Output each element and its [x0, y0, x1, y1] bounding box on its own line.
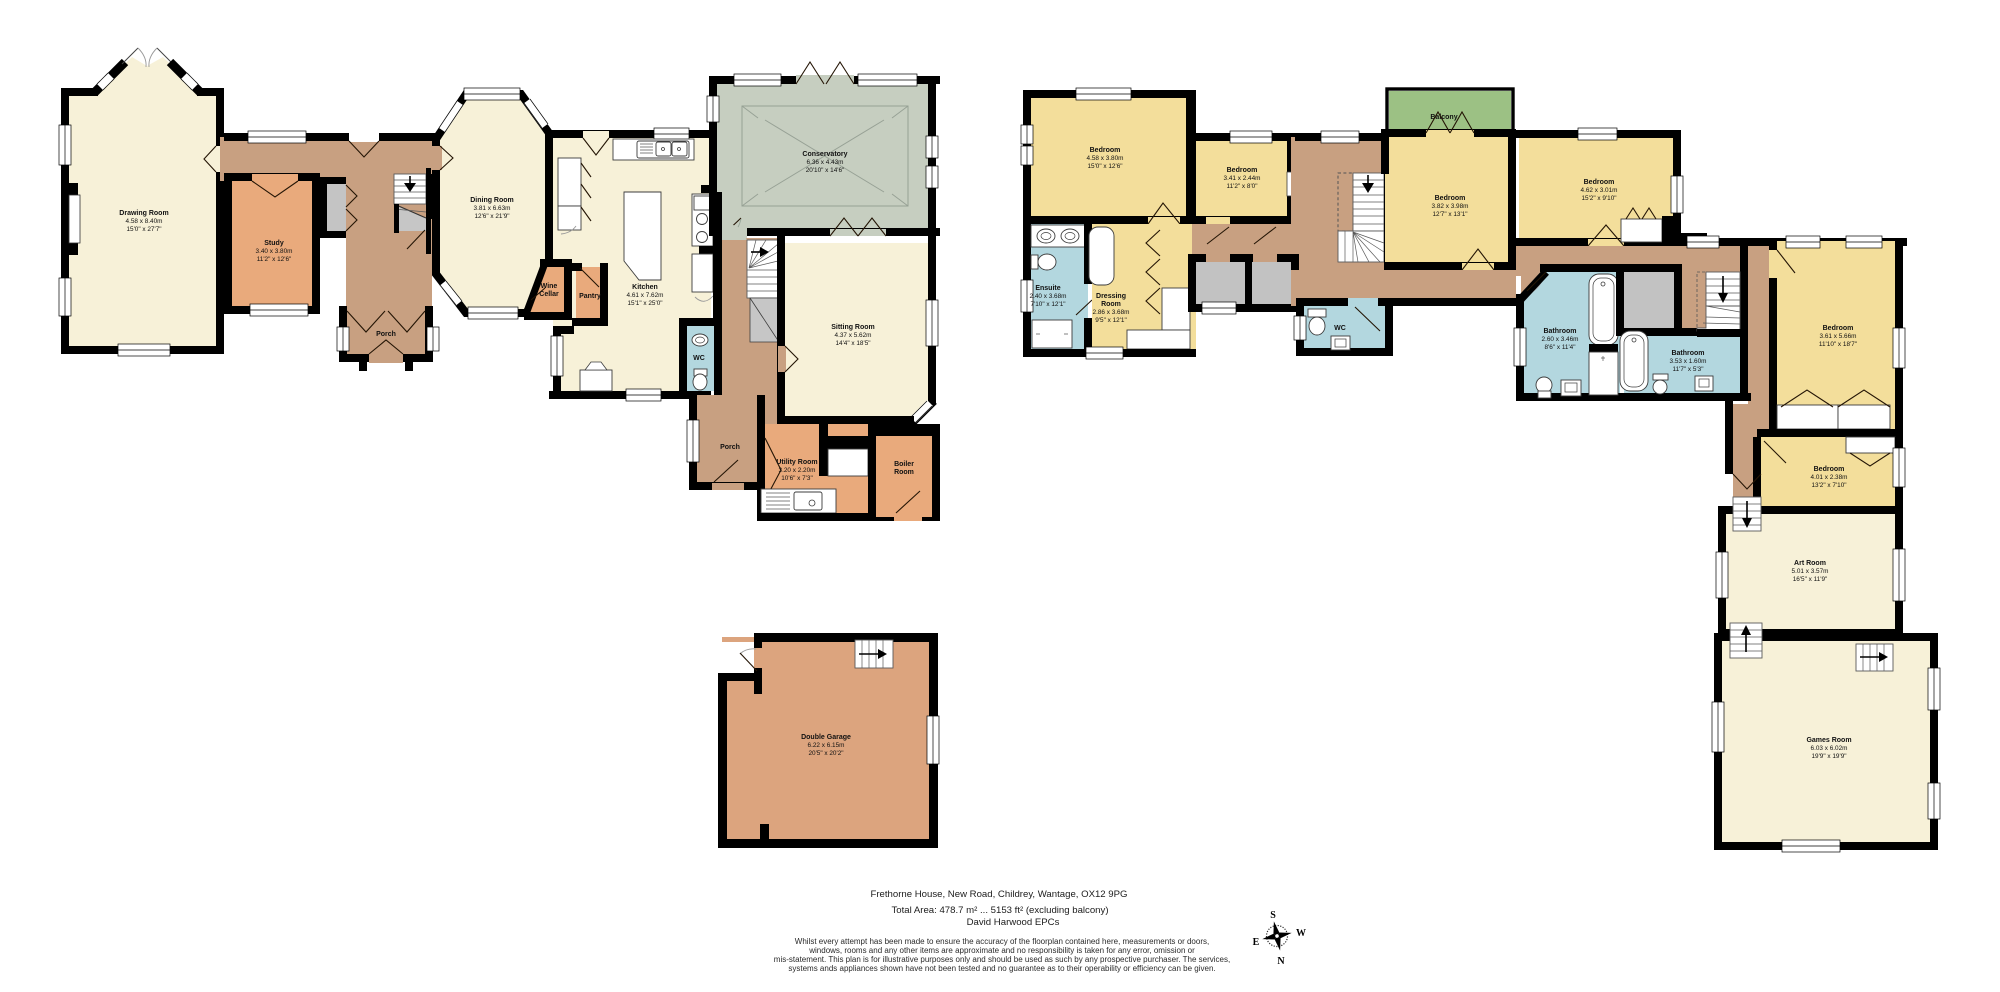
- svg-text:Porch: Porch: [376, 331, 396, 338]
- svg-text:11'7" x 5'3": 11'7" x 5'3": [1672, 366, 1703, 373]
- svg-text:3.41 x 2.44m: 3.41 x 2.44m: [1224, 175, 1261, 182]
- svg-text:Bathroom: Bathroom: [1543, 328, 1576, 335]
- svg-text:WC: WC: [693, 355, 705, 362]
- svg-text:7'10" x 12'1": 7'10" x 12'1": [1030, 301, 1065, 308]
- svg-text:Dining Room: Dining Room: [470, 197, 514, 204]
- svg-text:Sitting Room: Sitting Room: [831, 324, 875, 331]
- svg-text:Pantry: Pantry: [579, 293, 601, 300]
- svg-text:4.58 x 3.80m: 4.58 x 3.80m: [1087, 155, 1124, 162]
- svg-text:Kitchen: Kitchen: [632, 284, 658, 291]
- svg-text:Room: Room: [894, 469, 914, 476]
- svg-text:4.62 x 3.01m: 4.62 x 3.01m: [1581, 187, 1618, 194]
- svg-text:Dressing: Dressing: [1096, 293, 1126, 300]
- svg-text:N: N: [1277, 956, 1285, 967]
- svg-text:2.60 x 3.46m: 2.60 x 3.46m: [1542, 336, 1579, 343]
- svg-text:4.01 x 2.38m: 4.01 x 2.38m: [1811, 474, 1848, 481]
- svg-text:5.01 x 3.57m: 5.01 x 3.57m: [1792, 568, 1829, 575]
- svg-text:13'2" x 7'10": 13'2" x 7'10": [1811, 482, 1846, 489]
- svg-text:Drawing Room: Drawing Room: [119, 210, 168, 217]
- svg-text:2.40 x 3.68m: 2.40 x 3.68m: [1030, 293, 1067, 300]
- svg-text:WC: WC: [1334, 325, 1346, 332]
- svg-text:Bedroom: Bedroom: [1090, 147, 1121, 154]
- svg-text:3.53 x 1.60m: 3.53 x 1.60m: [1670, 358, 1707, 365]
- svg-text:Porch: Porch: [720, 444, 740, 451]
- svg-text:Conservatory: Conservatory: [802, 151, 847, 158]
- svg-text:S: S: [1270, 910, 1276, 921]
- svg-text:15'1" x 25'0": 15'1" x 25'0": [627, 300, 662, 307]
- svg-text:11'2" x 12'6": 11'2" x 12'6": [257, 256, 292, 263]
- svg-text:11'10" x 18'7": 11'10" x 18'7": [1819, 341, 1857, 348]
- svg-text:Wine: Wine: [541, 283, 558, 290]
- svg-text:4.58 x 8.40m: 4.58 x 8.40m: [126, 218, 163, 225]
- svg-text:David Harwood EPCs: David Harwood EPCs: [967, 917, 1060, 928]
- svg-text:4.61 x 7.62m: 4.61 x 7.62m: [627, 292, 664, 299]
- svg-text:windows, rooms and any other i: windows, rooms and any other items are a…: [808, 946, 1195, 955]
- svg-text:Room: Room: [1101, 301, 1121, 308]
- svg-text:15'0" x 12'6": 15'0" x 12'6": [1087, 163, 1122, 170]
- svg-text:4.37 x 5.62m: 4.37 x 5.62m: [835, 332, 872, 339]
- svg-text:3.82 x 3.98m: 3.82 x 3.98m: [1432, 203, 1469, 210]
- svg-text:Double Garage: Double Garage: [801, 734, 851, 741]
- svg-text:Bedroom: Bedroom: [1227, 167, 1258, 174]
- svg-text:16'5" x 11'9": 16'5" x 11'9": [1793, 576, 1828, 583]
- svg-text:9'5" x 12'1": 9'5" x 12'1": [1095, 317, 1127, 324]
- svg-text:Art Room: Art Room: [1794, 560, 1826, 567]
- svg-text:Utility Room: Utility Room: [776, 459, 817, 466]
- svg-text:E: E: [1253, 937, 1260, 948]
- svg-text:Whilst every attempt has been: Whilst every attempt has been made to en…: [795, 937, 1209, 946]
- svg-text:3.40 x 3.80m: 3.40 x 3.80m: [256, 248, 293, 255]
- svg-text:Study: Study: [264, 240, 284, 247]
- svg-text:10'6" x 7'3": 10'6" x 7'3": [781, 475, 813, 482]
- svg-text:W: W: [1296, 928, 1306, 939]
- svg-text:14'4" x 18'5": 14'4" x 18'5": [835, 340, 870, 347]
- svg-text:Total Area: 478.7 m² ... 5153: Total Area: 478.7 m² ... 5153 ft² (exclu…: [891, 905, 1108, 916]
- svg-text:systems ands appliances shown: systems ands appliances shown have not b…: [788, 964, 1215, 973]
- svg-text:15'0" x 27'7": 15'0" x 27'7": [126, 226, 161, 233]
- svg-text:Bathroom: Bathroom: [1671, 350, 1704, 357]
- svg-text:12'7" x 13'1": 12'7" x 13'1": [1432, 211, 1467, 218]
- svg-text:3.81 x 6.63m: 3.81 x 6.63m: [474, 205, 511, 212]
- svg-text:6.03 x 6.02m: 6.03 x 6.02m: [1811, 745, 1848, 752]
- svg-text:15'2" x 9'10": 15'2" x 9'10": [1581, 195, 1616, 202]
- svg-text:6.36 x 4.43m: 6.36 x 4.43m: [807, 159, 844, 166]
- svg-text:6.22 x 6.15m: 6.22 x 6.15m: [808, 742, 845, 749]
- svg-text:19'9" x 19'9": 19'9" x 19'9": [1811, 753, 1846, 760]
- svg-text:20'10" x 14'6": 20'10" x 14'6": [806, 167, 845, 174]
- svg-text:mis-statement. This plan is fo: mis-statement. This plan is for illustra…: [774, 955, 1230, 964]
- svg-text:Ensuite: Ensuite: [1035, 285, 1060, 292]
- svg-text:20'5" x 20'2": 20'5" x 20'2": [808, 750, 843, 757]
- svg-text:12'6" x 21'9": 12'6" x 21'9": [474, 213, 509, 220]
- svg-text:Bedroom: Bedroom: [1823, 325, 1854, 332]
- svg-text:Bedroom: Bedroom: [1814, 466, 1845, 473]
- svg-text:3.61 x 5.66m: 3.61 x 5.66m: [1820, 333, 1857, 340]
- svg-text:Games Room: Games Room: [1806, 737, 1851, 744]
- svg-text:Bedroom: Bedroom: [1584, 179, 1615, 186]
- svg-text:Cellar: Cellar: [539, 291, 559, 298]
- svg-text:11'2" x 8'0": 11'2" x 8'0": [1226, 183, 1257, 190]
- svg-text:Bedroom: Bedroom: [1435, 195, 1466, 202]
- svg-text:3.20 x 2.20m: 3.20 x 2.20m: [779, 467, 816, 474]
- svg-text:8'6" x 11'4": 8'6" x 11'4": [1544, 344, 1575, 351]
- svg-text:2.86 x 3.68m: 2.86 x 3.68m: [1093, 309, 1130, 316]
- svg-text:Frethorne House, New Road, Chi: Frethorne House, New Road, Childrey, Wan…: [870, 889, 1127, 900]
- svg-text:Boiler: Boiler: [894, 461, 914, 468]
